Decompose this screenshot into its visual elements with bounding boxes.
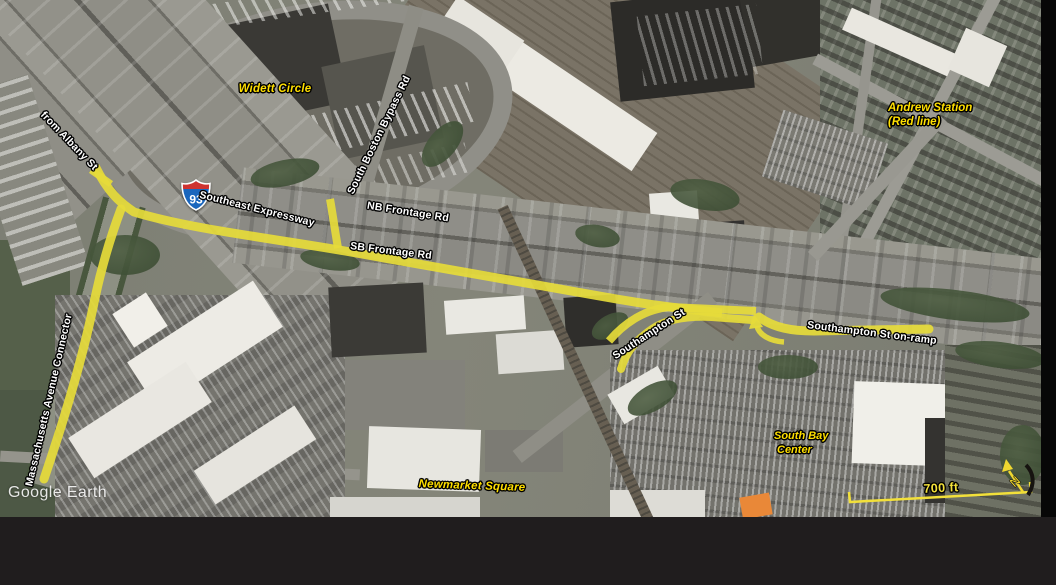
google-earth-viewport: N 93 from Albany St Southeast Expressway… — [0, 0, 1056, 585]
letterbox-right — [1041, 0, 1056, 517]
andrew-station-line1: Andrew Station — [888, 101, 972, 115]
place-label-andrew-station: Andrew Station (Red line) — [888, 101, 972, 130]
north-arrow: N — [1002, 459, 1033, 495]
google-earth-watermark: Google Earth — [8, 484, 107, 502]
north-arrow-swash — [1026, 465, 1033, 495]
south-bay-center-line1: South Bay — [774, 430, 828, 444]
shield-red-band — [181, 182, 211, 190]
annotation-overlay: N — [0, 0, 1041, 517]
satellite-map-canvas[interactable]: N 93 from Albany St Southeast Expressway… — [0, 0, 1041, 517]
north-arrow-tip — [1002, 459, 1013, 472]
andrew-station-line2: (Red line) — [888, 115, 972, 129]
place-label-south-bay-center: South Bay Center — [774, 430, 828, 458]
letterbox-bottom — [0, 517, 1056, 585]
place-label-widett-circle: Widett Circle — [239, 83, 312, 95]
south-bay-center-line2: Center — [774, 444, 828, 458]
route-highlight-crossover — [330, 199, 338, 248]
scale-bar-label: 700 ft — [923, 480, 959, 496]
